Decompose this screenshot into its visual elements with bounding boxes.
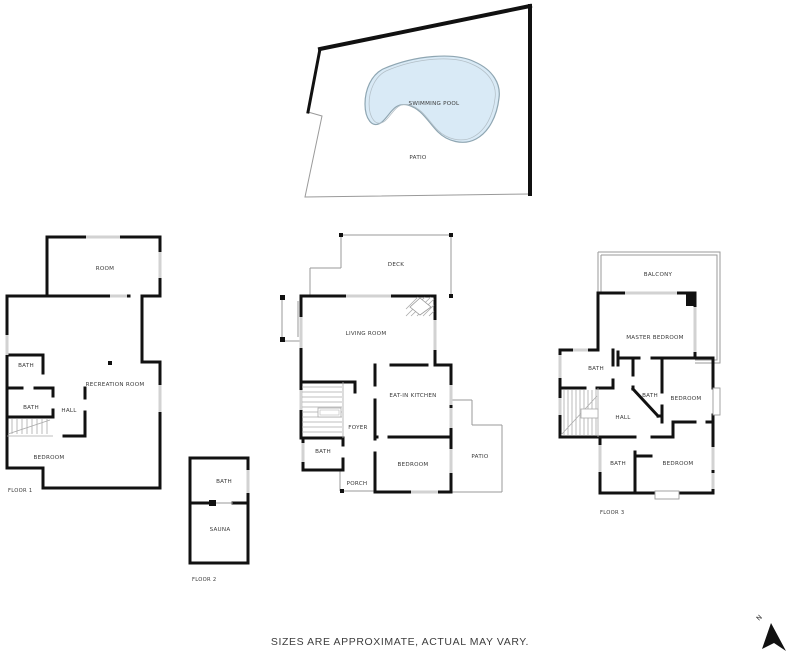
deck-post bbox=[449, 233, 453, 237]
swimming-pool-label: SWIMMING POOL bbox=[409, 101, 461, 107]
rail-post bbox=[280, 295, 285, 300]
sauna-bath-label: BATH bbox=[216, 479, 232, 485]
deck-post bbox=[339, 233, 343, 237]
fireplace bbox=[406, 297, 434, 316]
north-label: N bbox=[755, 613, 764, 622]
porch-patio-outline bbox=[340, 400, 502, 492]
floor3-bath-middle-label: BATH bbox=[642, 393, 658, 399]
floor3-bedroom-lower-label: BEDROOM bbox=[663, 461, 694, 467]
floor1-bedroom-label: BEDROOM bbox=[34, 455, 65, 461]
floor3-bay-window bbox=[713, 388, 720, 415]
living-room-label: LIVING ROOM bbox=[346, 331, 387, 337]
balcony-label: BALCONY bbox=[644, 272, 673, 278]
compass: N bbox=[748, 603, 796, 661]
floor1-recreation-label: RECREATION ROOM bbox=[86, 382, 145, 388]
sauna-label: SAUNA bbox=[210, 527, 231, 533]
floor1-stairs bbox=[7, 419, 53, 436]
sauna-door-jamb bbox=[209, 500, 216, 506]
floor3-hall-label: HALL bbox=[615, 415, 631, 421]
floor2-title: FLOOR 2 bbox=[192, 577, 217, 583]
rail-post bbox=[280, 337, 285, 342]
floor3-bedroom-middle-label: BEDROOM bbox=[671, 396, 702, 402]
stair-landing bbox=[581, 409, 598, 418]
floor2-patio-label: PATIO bbox=[471, 454, 488, 460]
floor1-bath-lower-label: BATH bbox=[23, 405, 39, 411]
deck-label: DECK bbox=[388, 262, 404, 268]
foyer-label: FOYER bbox=[348, 425, 367, 431]
patio-pool-plan: SWIMMING POOL PATIO bbox=[295, 2, 540, 207]
disclaimer-text: SIZES ARE APPROXIMATE, ACTUAL MAY VARY. bbox=[0, 636, 800, 648]
deck-railing bbox=[310, 235, 451, 296]
deck-post bbox=[449, 294, 453, 298]
floor3-bottom-window bbox=[655, 491, 679, 499]
balcony-railing bbox=[598, 252, 720, 363]
floorplan-canvas: SWIMMING POOL PATIO ROOM RECREATION ROOM… bbox=[0, 0, 800, 663]
master-corner bbox=[686, 293, 695, 306]
floor1-title: FLOOR 1 bbox=[8, 488, 33, 494]
floor2-plan: DECK LIVING ROOM EAT-IN KITCHEN FOYER BA… bbox=[278, 225, 523, 505]
floor2-sauna-plan: BATH SAUNA FLOOR 2 bbox=[185, 450, 260, 585]
floor1-hall-label: HALL bbox=[61, 408, 77, 414]
sauna-walls bbox=[190, 458, 248, 563]
floor3-title: FLOOR 3 bbox=[600, 510, 625, 516]
side-railing bbox=[282, 297, 300, 341]
floor2-bath-label: BATH bbox=[315, 449, 331, 455]
stair-landing-inner bbox=[320, 410, 339, 415]
floor1-post bbox=[108, 361, 112, 365]
kitchen-label: EAT-IN KITCHEN bbox=[389, 393, 436, 399]
porch-label: PORCH bbox=[347, 481, 368, 487]
floor3-bath-lower-label: BATH bbox=[610, 461, 626, 467]
porch-post bbox=[340, 489, 344, 493]
floor3-bath-top-label: BATH bbox=[588, 366, 604, 372]
floor1-room-label: ROOM bbox=[96, 266, 115, 272]
patio-wall-left bbox=[308, 49, 320, 112]
patio-label: PATIO bbox=[409, 155, 426, 161]
swimming-pool-shape bbox=[365, 56, 499, 142]
floor2-bedroom-label: BEDROOM bbox=[398, 462, 429, 468]
floor1-bath-upper-label: BATH bbox=[18, 363, 34, 369]
floor1-plan: ROOM RECREATION ROOM BATH BATH HALL BEDR… bbox=[2, 228, 182, 496]
master-bedroom-label: MASTER BEDROOM bbox=[626, 335, 684, 341]
floor3-plan: BALCONY MASTER BEDROOM BATH BATH BEDROOM… bbox=[555, 240, 755, 520]
